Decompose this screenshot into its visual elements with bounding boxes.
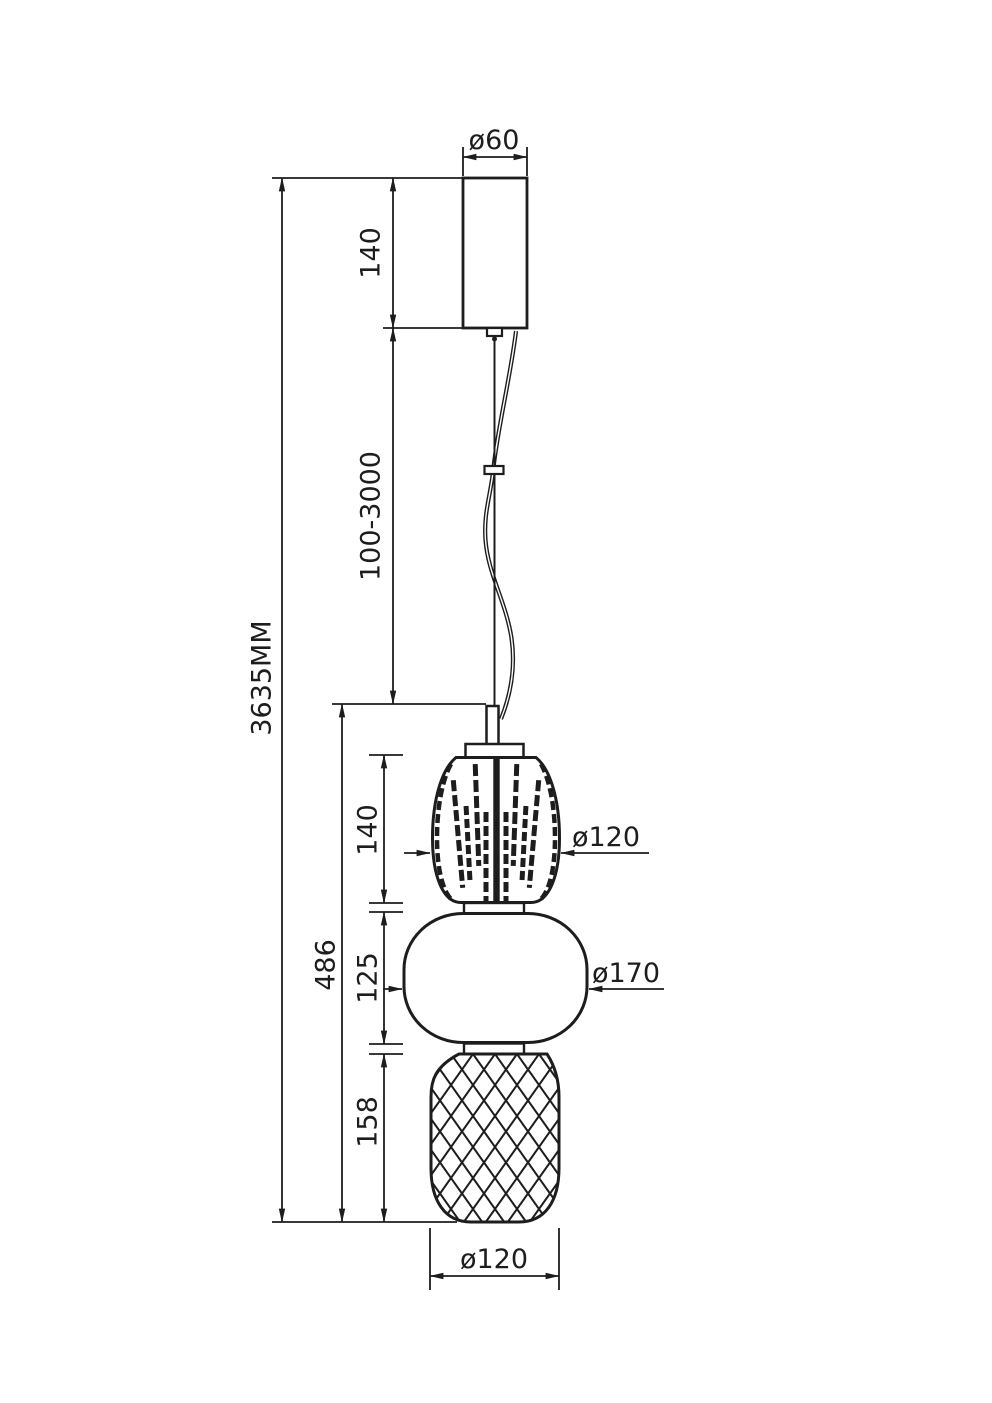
bottom-crosshatch-shade bbox=[431, 1054, 559, 1222]
canopy-height-label: 140 bbox=[356, 227, 387, 279]
bottom-shade-diameter-label: ø120 bbox=[460, 1244, 528, 1275]
cable-length-label: 100-3000 bbox=[356, 451, 387, 581]
technical-drawing-canvas: ø60 140 100-3000 3635MM 486 140 125 158 … bbox=[0, 0, 992, 1403]
middle-shade-diameter-label: ø170 bbox=[592, 958, 660, 989]
top-cap bbox=[466, 744, 524, 758]
top-shade-center-rod bbox=[493, 758, 499, 902]
middle-globe bbox=[404, 914, 587, 1043]
bottom-shade-height-label: 158 bbox=[353, 1096, 384, 1148]
ceiling-canopy bbox=[463, 178, 527, 328]
canopy-diameter-label: ø60 bbox=[469, 125, 520, 156]
top-shade-diameter-label: ø120 bbox=[572, 822, 640, 853]
middle-shade-height-label: 125 bbox=[353, 952, 384, 1004]
pendant-lamp-drawing: ø60 140 100-3000 3635MM 486 140 125 158 … bbox=[0, 0, 992, 1403]
cord-clamp bbox=[485, 466, 504, 474]
cable-gland bbox=[487, 328, 502, 336]
connector-upper bbox=[464, 903, 524, 914]
connector-lower bbox=[464, 1044, 524, 1055]
top-ribbed-shade bbox=[433, 758, 560, 903]
power-cord bbox=[485, 331, 516, 719]
fixture-height-label: 486 bbox=[311, 939, 342, 991]
lamp-assembly bbox=[404, 178, 587, 1222]
stem bbox=[487, 706, 499, 745]
top-shade-height-label: 140 bbox=[353, 804, 384, 856]
overall-height-label: 3635MM bbox=[247, 620, 278, 735]
